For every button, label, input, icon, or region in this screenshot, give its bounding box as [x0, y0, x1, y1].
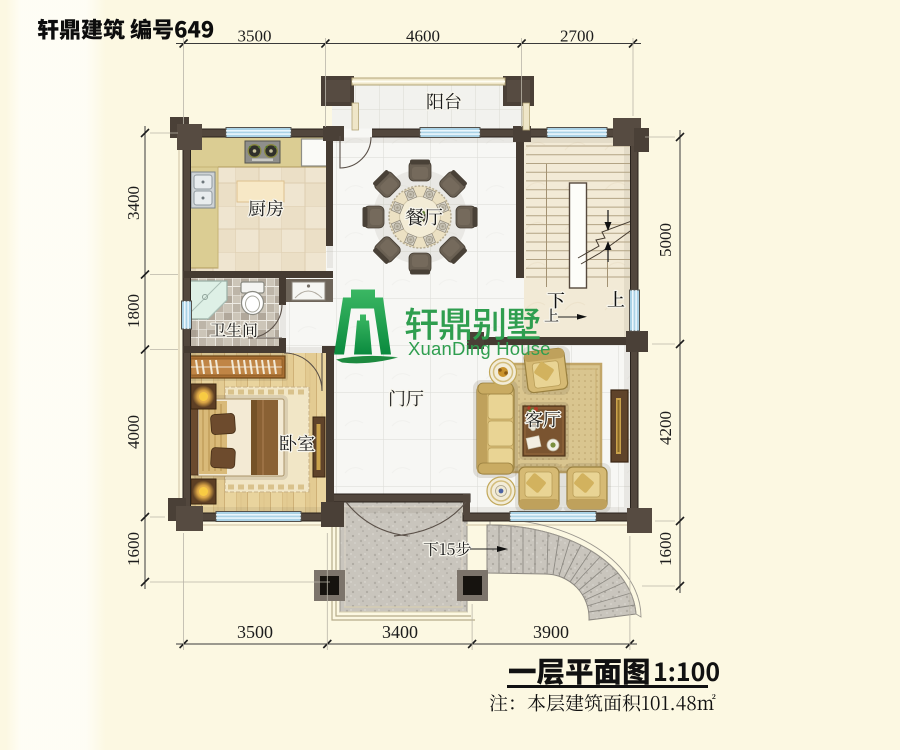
- svg-text:4600: 4600: [406, 27, 440, 46]
- svg-text:2700: 2700: [560, 27, 594, 46]
- svg-text:3900: 3900: [533, 622, 569, 642]
- svg-text:3400: 3400: [382, 622, 418, 642]
- svg-text:XuanDing House: XuanDing House: [408, 338, 551, 359]
- svg-text:1800: 1800: [124, 294, 143, 328]
- svg-text:1600: 1600: [124, 532, 143, 566]
- svg-text:3500: 3500: [237, 622, 273, 642]
- svg-text:3500: 3500: [238, 27, 272, 46]
- svg-text:4200: 4200: [656, 411, 675, 445]
- svg-text:3400: 3400: [124, 186, 143, 220]
- svg-text:5000: 5000: [656, 223, 675, 257]
- svg-text:4000: 4000: [124, 415, 143, 449]
- svg-text:1600: 1600: [656, 532, 675, 566]
